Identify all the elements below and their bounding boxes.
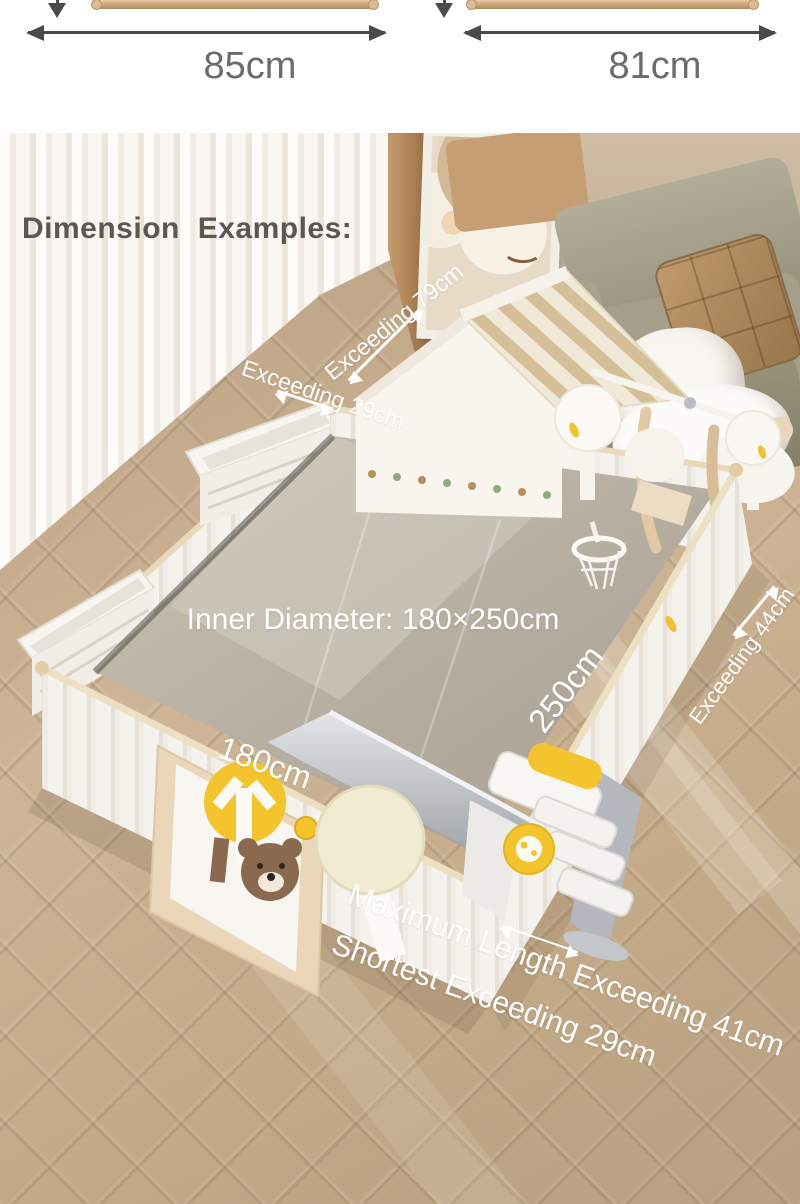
width-arrow-85-icon <box>28 31 385 34</box>
product-panel-bottom-left <box>93 0 377 9</box>
annotation-inner-diameter: Inner Diameter: 180×250cm <box>187 603 560 637</box>
width-label-85: 85cm <box>175 45 325 88</box>
top-measurement-strip: 85cm 81cm <box>0 0 800 133</box>
width-label-81: 81cm <box>580 45 730 88</box>
vertical-arrowhead-right-icon <box>435 3 453 18</box>
hinge-knob-icon <box>91 0 102 10</box>
hinge-knob-icon <box>368 0 379 10</box>
hinge-knob-icon <box>748 0 759 10</box>
product-dimension-image: 85cm 81cm <box>0 0 800 1204</box>
width-arrow-81-icon <box>465 31 775 34</box>
vertical-arrowhead-left-icon <box>48 3 66 18</box>
product-panel-bottom-right <box>468 0 757 9</box>
hinge-knob-icon <box>466 0 477 10</box>
dimension-title: Dimension Examples: <box>22 212 352 246</box>
scene-photo <box>0 133 800 1204</box>
